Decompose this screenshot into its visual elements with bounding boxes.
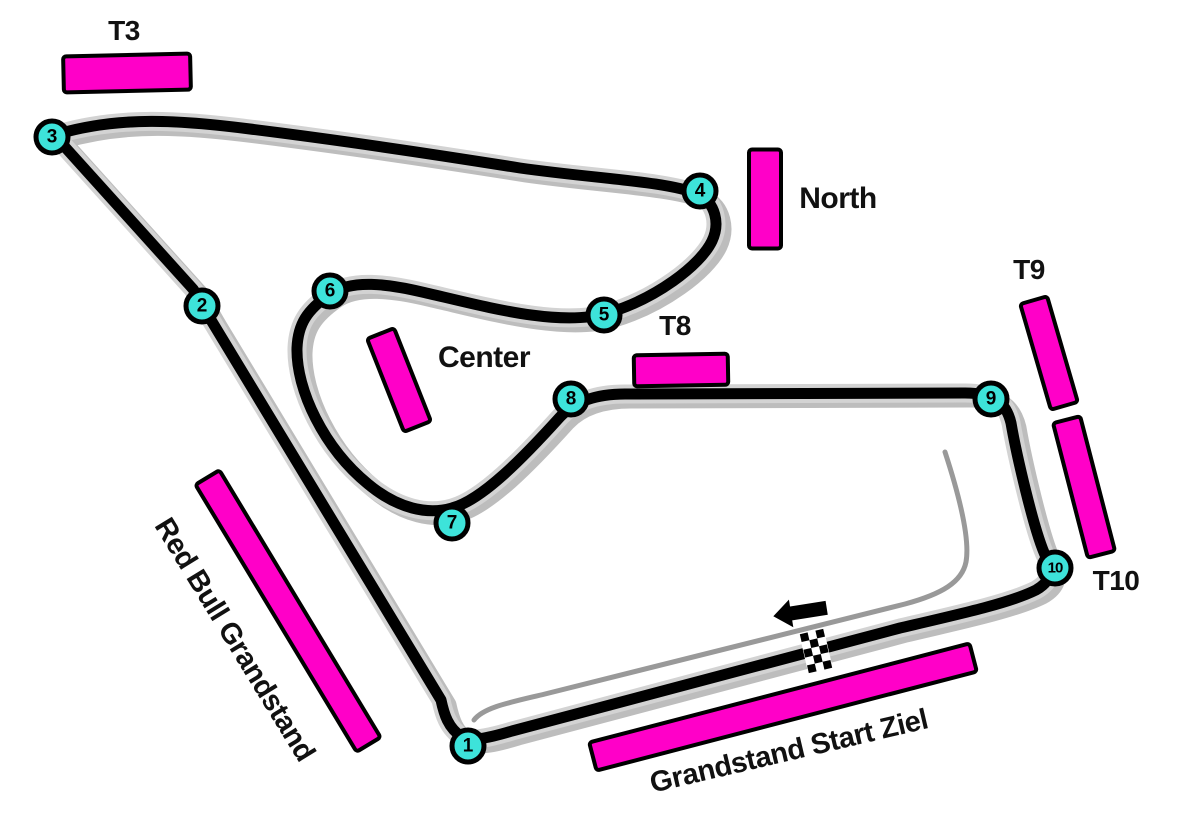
grandstand-bar-t8 — [632, 352, 731, 389]
turn-marker-10: 10 — [1037, 550, 1074, 587]
track-svg — [0, 0, 1200, 838]
turn-marker-8: 8 — [553, 381, 590, 418]
turn-marker-6: 6 — [312, 273, 349, 310]
track-shadow — [64, 126, 1056, 744]
grandstand-label-center: Center — [438, 341, 530, 375]
grandstand-label-t9: T9 — [1013, 254, 1045, 286]
grandstand-bar-t3 — [61, 52, 193, 95]
turn-marker-5: 5 — [586, 297, 623, 334]
turn-marker-1: 1 — [450, 728, 487, 765]
turn-marker-2: 2 — [184, 288, 221, 325]
turn-marker-3: 3 — [34, 119, 71, 156]
grandstand-label-t8: T8 — [659, 310, 691, 342]
turn-marker-4: 4 — [682, 173, 719, 210]
track-surface — [58, 121, 1050, 739]
turn-marker-9: 9 — [973, 381, 1010, 418]
grandstand-label-north: North — [799, 182, 876, 216]
grandstand-label-t3: T3 — [108, 15, 140, 47]
circuit-map: T3NorthCenterT8T9T10Red Bull GrandstandG… — [0, 0, 1200, 838]
grandstand-bar-north — [747, 148, 783, 251]
turn-marker-7: 7 — [434, 505, 471, 542]
grandstand-label-t10: T10 — [1093, 565, 1140, 597]
